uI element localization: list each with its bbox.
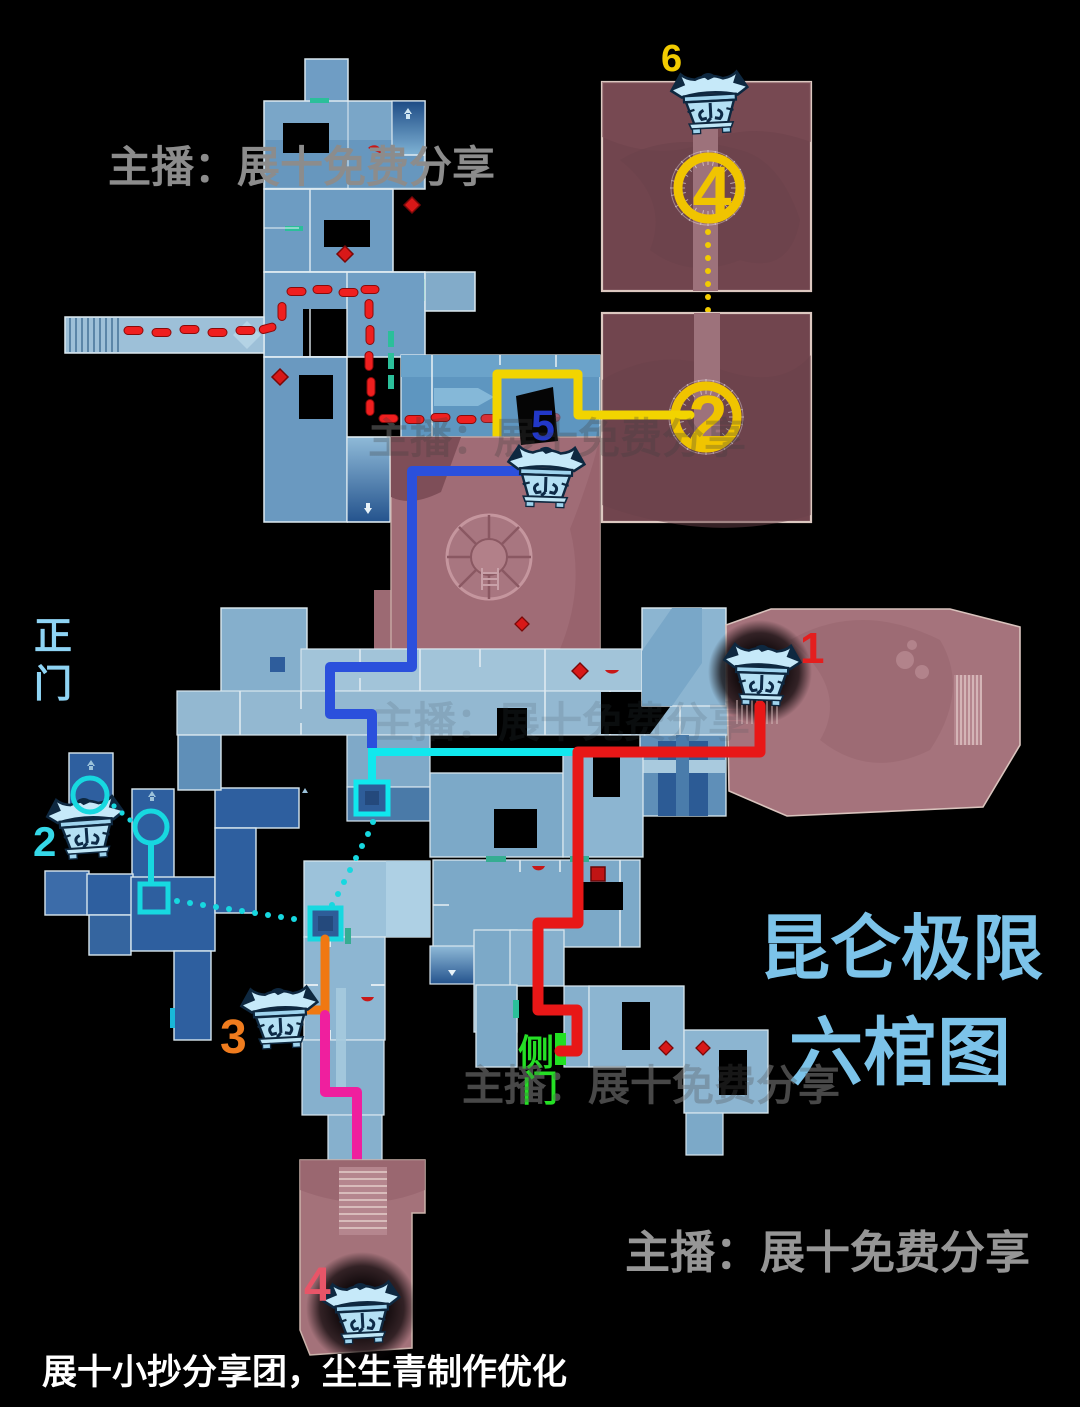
svg-text:4: 4	[304, 1259, 331, 1312]
svg-text:正: 正	[34, 616, 72, 658]
svg-text:4: 4	[693, 152, 732, 230]
svg-text:1: 1	[800, 624, 824, 673]
svg-text:门: 门	[34, 664, 72, 706]
svg-text:主播：展十免费分享: 主播：展十免费分享	[462, 1062, 840, 1109]
svg-text:6: 6	[661, 38, 682, 80]
svg-text:主播：展十免费分享: 主播：展十免费分享	[108, 144, 495, 192]
svg-text:3: 3	[220, 1011, 247, 1064]
svg-text:2: 2	[33, 818, 56, 865]
svg-text:展十小抄分享团，尘生青制作优化: 展十小抄分享团，尘生青制作优化	[42, 1353, 567, 1392]
svg-text:主播：展十免费分享: 主播：展十免费分享	[372, 699, 750, 746]
svg-text:主播：展十免费分享: 主播：展十免费分享	[625, 1227, 1030, 1278]
svg-text:昆仑极限: 昆仑极限	[759, 910, 1043, 989]
